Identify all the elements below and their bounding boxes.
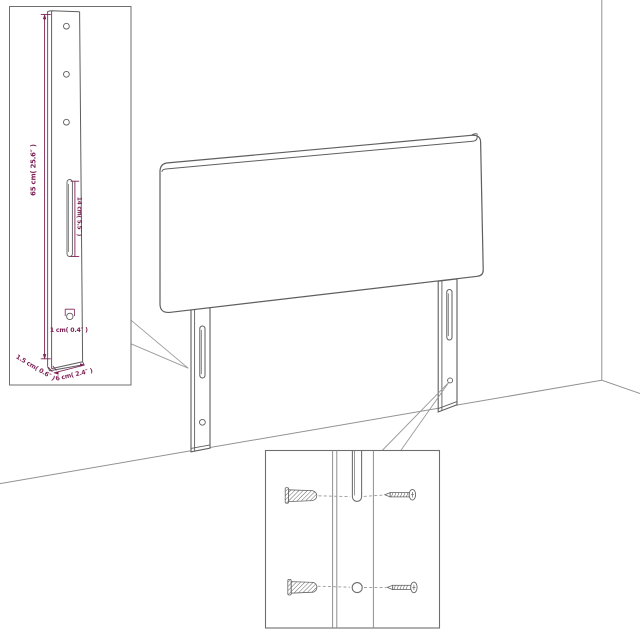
- headboard-face: [160, 135, 483, 312]
- callout-line-hardware-right: [401, 383, 449, 451]
- leg-detail-inset: 65 cm( 25.6″ ) 14 cm( 5.5″ ) 1 cm( 0.4″ …: [10, 7, 132, 386]
- headboard-left-leg: [191, 307, 210, 451]
- dim-label-slot-length: 14 cm( 5.5″ ): [75, 197, 81, 237]
- left-leg-slot: [200, 326, 205, 378]
- wall-plug-flange: [285, 488, 288, 504]
- dim-label-bottom-hole: 1 cm( 0.4″ ): [50, 327, 88, 334]
- detail-callout-lines: [131, 320, 449, 450]
- diagram-canvas: 65 cm( 25.6″ ) 14 cm( 5.5″ ) 1 cm( 0.4″ …: [0, 0, 640, 640]
- hardware-hole: [352, 583, 362, 593]
- callout-line-leg-detail-lower: [131, 344, 188, 368]
- right-leg-slot: [447, 290, 452, 341]
- headboard-panel: [160, 134, 483, 313]
- wall-plug-body: [289, 490, 317, 502]
- wall-plug-body: [291, 582, 317, 594]
- wall-plug-flange: [288, 579, 291, 595]
- callout-line-leg-detail-upper: [131, 320, 188, 368]
- headboard-right-leg: [438, 279, 457, 412]
- left-leg-hole: [200, 419, 206, 425]
- hardware-detail-inset: [266, 451, 440, 629]
- right-leg-hole: [448, 378, 453, 383]
- floor-line-right: [602, 380, 640, 393]
- dim-label-leg-height: 65 cm( 25.6″ ): [30, 144, 38, 196]
